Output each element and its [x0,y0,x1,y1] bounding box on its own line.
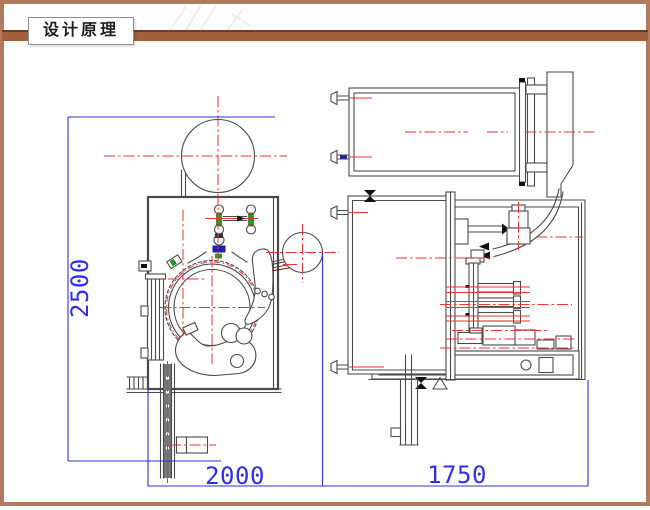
page: 2500 2000 1750 设计原理 [0,0,650,510]
page-title: 设计原理 [28,17,134,45]
page-frame [0,0,650,506]
